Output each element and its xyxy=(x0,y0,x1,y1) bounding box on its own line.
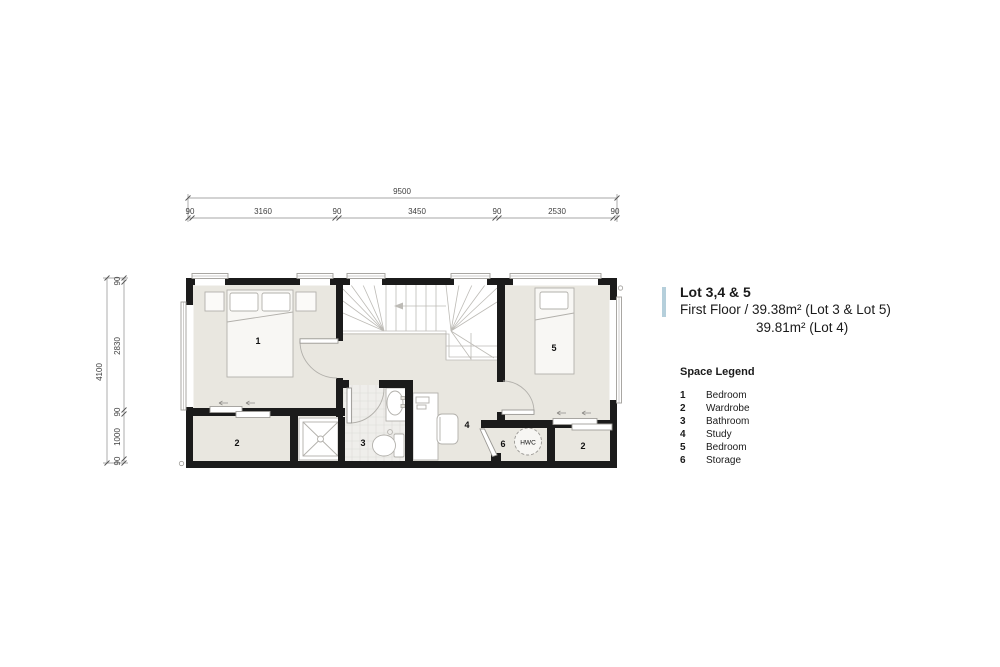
legend-item-label: Bedroom xyxy=(706,441,747,454)
legend-item: 2 Wardrobe xyxy=(680,402,755,415)
legend-item-label: Storage xyxy=(706,454,741,467)
room-label-4: 4 xyxy=(464,420,469,430)
wall-bath-top-left xyxy=(336,380,349,388)
legend-item-num: 2 xyxy=(680,402,706,415)
dim-left-seg-1: 2830 xyxy=(113,337,122,355)
wall-bottom xyxy=(186,461,617,468)
legend-item-num: 3 xyxy=(680,415,706,428)
dim-top-seg-2: 90 xyxy=(333,207,342,216)
wall-shower-divider xyxy=(338,417,345,461)
legend-item-num: 4 xyxy=(680,428,706,441)
pillow-right xyxy=(262,293,290,311)
door-leaf-bed5 xyxy=(502,410,534,414)
legend-item-num: 6 xyxy=(680,454,706,467)
room-label-5: 5 xyxy=(551,343,556,353)
wall-bed1-right-upper xyxy=(336,285,343,341)
legend-item: 5 Bedroom xyxy=(680,441,755,454)
legend-item-label: Bedroom xyxy=(706,389,747,402)
tap-2 xyxy=(401,405,405,408)
shower xyxy=(299,418,342,460)
room-label-2-right: 2 xyxy=(580,441,585,451)
legend-item: 6 Storage xyxy=(680,454,755,467)
room-label-6: 6 xyxy=(500,439,505,449)
dim-top-seg-0: 90 xyxy=(186,207,195,216)
downpipe-bottom-left xyxy=(179,461,183,465)
page: 1 2 3 4 5 6 2 HWC 9500 90 3160 90 3450 9… xyxy=(0,0,1000,667)
lot-title: Lot 3,4 & 5 xyxy=(680,283,891,301)
dim-labels-top: 9500 90 3160 90 3450 90 2530 90 xyxy=(186,187,620,216)
desk-item-1 xyxy=(416,397,429,403)
sink-basin xyxy=(387,391,403,415)
legend-item-label: Wardrobe xyxy=(706,402,750,415)
dim-top-seg-1: 3160 xyxy=(254,207,272,216)
wall-wardrobe-shower xyxy=(290,416,298,461)
dim-top-seg-4: 90 xyxy=(493,207,502,216)
dim-left-seg-0: 90 xyxy=(113,276,122,285)
dimensions-top: 9500 90 3160 90 3450 90 2530 90 xyxy=(186,187,620,222)
downpipe-top-right xyxy=(618,286,622,290)
shower-drain xyxy=(318,436,324,442)
space-legend: Space Legend 1 Bedroom 2 Wardrobe 3 Bath… xyxy=(680,366,755,467)
nightstand-left xyxy=(205,292,224,311)
dim-left-seg-2: 90 xyxy=(113,407,122,416)
wall-storage-wardrobe xyxy=(547,428,555,461)
dim-top-seg-3: 3450 xyxy=(408,207,426,216)
pillow-single xyxy=(540,292,568,309)
title-block: Lot 3,4 & 5 First Floor / 39.38m² (Lot 3… xyxy=(662,283,891,337)
legend-item-label: Bathroom xyxy=(706,415,749,428)
dim-total-height: 4100 xyxy=(95,363,104,381)
door-leaf-bed1 xyxy=(300,339,338,343)
bed-single xyxy=(535,288,574,374)
nightstand-right xyxy=(296,292,316,311)
room-label-1: 1 xyxy=(255,336,260,346)
legend-item: 3 Bathroom xyxy=(680,415,755,428)
legend-item: 4 Study xyxy=(680,428,755,441)
pillow-left xyxy=(230,293,258,311)
floor-area-line-1: First Floor / 39.38m² (Lot 3 & Lot 5) xyxy=(680,301,891,319)
slider-bed5-b xyxy=(572,424,612,430)
legend-item-num: 1 xyxy=(680,389,706,402)
dimensions-left: 4100 90 2830 90 1000 90 xyxy=(95,276,128,466)
wall-bed5-left xyxy=(497,285,505,382)
window-gap-left xyxy=(186,305,194,407)
dim-labels-left: 4100 90 2830 90 1000 90 xyxy=(95,276,122,465)
desk-item-2 xyxy=(417,405,426,409)
dim-top-seg-6: 90 xyxy=(611,207,620,216)
dim-left-seg-4: 90 xyxy=(113,456,122,465)
dim-top-seg-5: 2530 xyxy=(548,207,566,216)
wall-storage-top xyxy=(481,420,555,428)
legend-heading: Space Legend xyxy=(680,366,755,378)
wall-bath-right xyxy=(405,380,413,461)
dim-total-width: 9500 xyxy=(393,187,411,196)
legend-item: 1 Bedroom xyxy=(680,389,755,402)
hwc-label: HWC xyxy=(520,440,536,447)
legend-item-label: Study xyxy=(706,428,732,441)
tap-1 xyxy=(401,397,405,400)
floor-area-line-2: 39.81m² (Lot 4) xyxy=(680,319,891,337)
slider-bed1-b xyxy=(236,412,270,418)
toilet-bowl xyxy=(373,435,396,456)
room-label-3: 3 xyxy=(360,438,365,448)
door-leaf-bath xyxy=(347,388,351,423)
room-label-2-left: 2 xyxy=(234,438,239,448)
floor-waste xyxy=(388,430,393,435)
dim-left-seg-3: 1000 xyxy=(113,428,122,446)
accent-bar xyxy=(662,287,666,317)
legend-item-num: 5 xyxy=(680,441,706,454)
